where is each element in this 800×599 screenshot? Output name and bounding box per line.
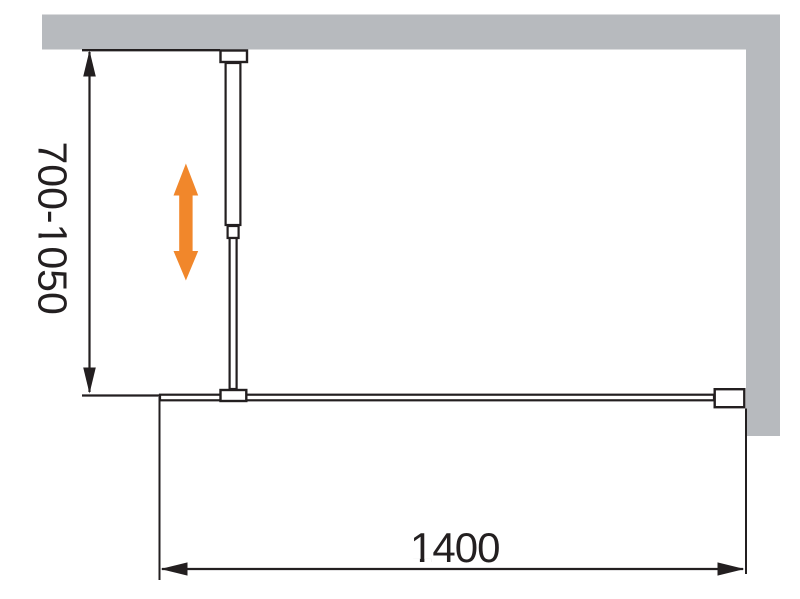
- svg-text:1400: 1400: [410, 524, 499, 571]
- svg-text:700-1050: 700-1050: [30, 142, 76, 315]
